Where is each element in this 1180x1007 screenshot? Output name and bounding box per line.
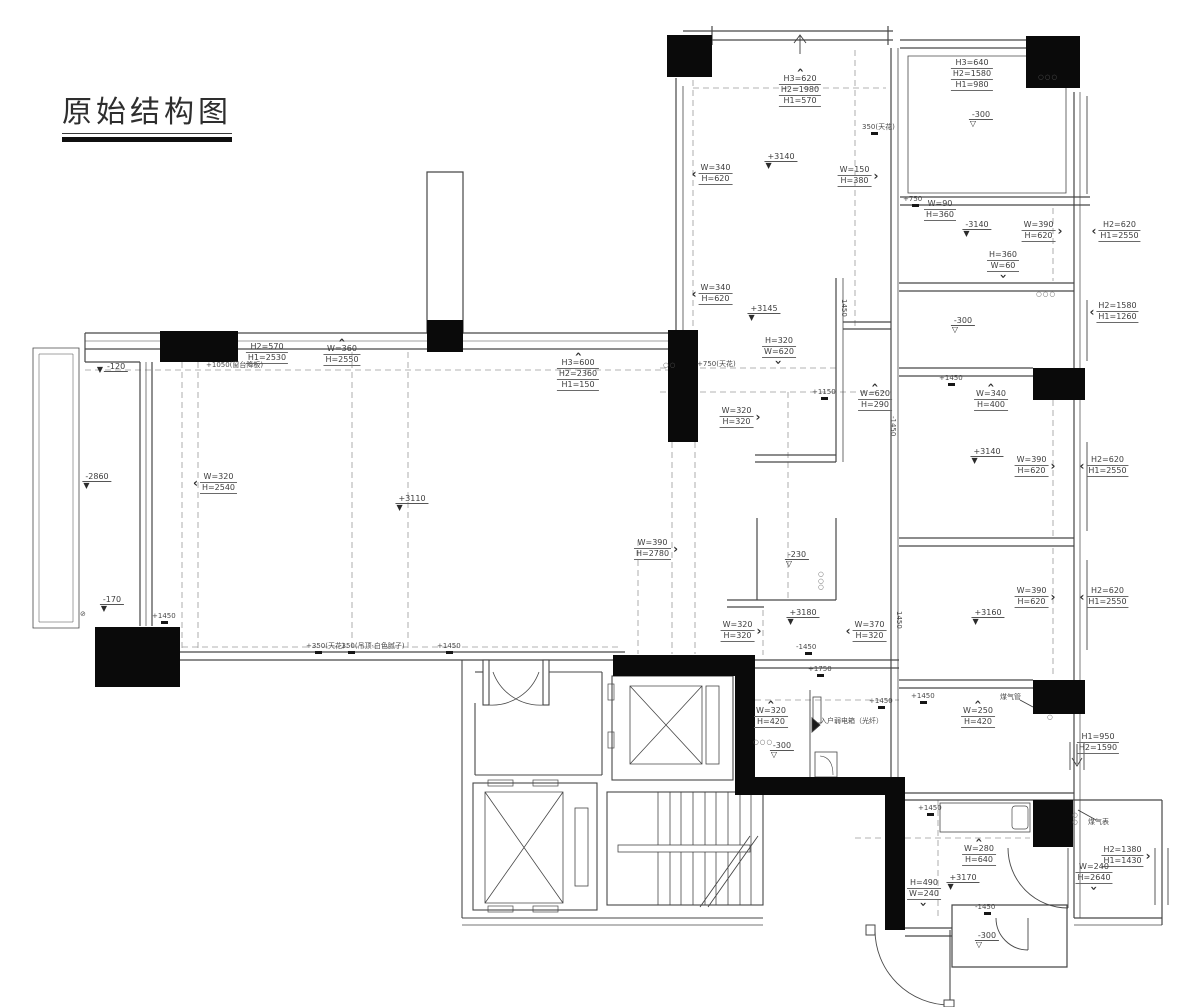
dimension-text: H1=2550 — [1086, 466, 1128, 477]
dimension-text: W=150 — [838, 165, 872, 176]
dimension-text: H1=150 — [557, 380, 599, 391]
note-text: +750 — [903, 195, 922, 207]
dimension-text: H2=1380 — [1101, 845, 1143, 856]
arrow-right-icon: › — [1057, 227, 1062, 235]
dimension-text: H2=620 — [1086, 586, 1128, 597]
dimension-label: W=150H=380› — [838, 165, 879, 187]
dimension-text: W=370 — [853, 620, 887, 631]
arrow-left-icon: ‹ — [692, 170, 697, 178]
dimension-label: W=320H=320› — [721, 620, 762, 642]
dimension-text: H=490 — [907, 878, 941, 889]
dimension-text: W=250 — [961, 706, 995, 717]
level-marker: -170▼ — [100, 595, 124, 612]
dimension-text: H1=980 — [951, 80, 993, 91]
circle-glyph: ○ — [1038, 74, 1044, 81]
dimension-label: W=240H=2640› — [1075, 862, 1112, 892]
level-triangle-filled-icon: ▼ — [83, 482, 89, 489]
level-triangle-filled-icon: ▼ — [972, 618, 978, 625]
dimension-text: H=420 — [754, 717, 788, 728]
vent-circles-icon: ○ — [1047, 714, 1053, 721]
dimension-text: H=2780 — [634, 549, 671, 560]
arrow-up-icon: › — [871, 383, 879, 388]
note-text: +1450 — [869, 697, 893, 709]
tick-mark — [161, 621, 168, 624]
note-text: -1450 — [796, 643, 816, 655]
note-value: -1450 — [889, 416, 897, 436]
dimension-label: ›W=280H=640 — [962, 836, 996, 866]
dimension-label: ›W=320H=420 — [754, 698, 788, 728]
dimension-label: W=390H=2780› — [634, 538, 678, 560]
level-triangle-open-icon: ▽ — [771, 751, 777, 758]
note-value: -1450 — [796, 643, 816, 651]
note-text: +1050(窗台降板) — [206, 361, 263, 369]
arrow-down-icon: › — [999, 274, 1007, 279]
note-text: +1450 — [939, 374, 963, 386]
dimension-label: H=320W=620› — [762, 336, 796, 366]
dimension-label: ‹W=320H=2540 — [193, 472, 237, 494]
dimension-text: H=620 — [699, 294, 733, 305]
tick-mark — [871, 132, 878, 135]
dimension-label: ‹H2=1580H1=1260 — [1089, 301, 1138, 323]
drawing-title-block: 原始结构图 — [62, 96, 232, 142]
dimension-text: H=400 — [974, 400, 1008, 411]
dimension-text: H=360 — [924, 210, 956, 221]
level-marker: +3180▼ — [786, 608, 819, 625]
dimension-text: W=320 — [720, 406, 754, 417]
note-value: 1450 — [895, 611, 903, 629]
arrow-down-icon: › — [1090, 886, 1098, 891]
level-marker: +3145▼ — [747, 304, 780, 321]
note-value: 入户弱电箱（光纤） — [820, 717, 883, 725]
circle-glyph: ○ — [1045, 74, 1051, 81]
level-marker: +3170▼ — [946, 873, 979, 890]
arrow-right-icon: › — [1050, 593, 1055, 601]
level-triangle-filled-icon: ▼ — [97, 366, 103, 373]
note-value: 煤气管 — [1000, 693, 1021, 701]
dimension-text: W=390 — [1015, 586, 1049, 597]
note-text: +1450 — [152, 612, 176, 624]
circle-glyph: ○ — [1047, 714, 1053, 721]
dimension-label: H=490W=240› — [907, 878, 941, 908]
dimension-label: ›W=620H=290 — [858, 381, 892, 411]
level-triangle-open-icon: ▽ — [952, 326, 958, 333]
dimension-text: H=320 — [853, 631, 887, 642]
arrow-up-icon: › — [767, 700, 775, 705]
circle-glyph: ○ — [663, 362, 669, 369]
note-value: +1450 — [911, 692, 935, 700]
floor-plan-canvas: 原始结构图 ›H3=620H2=1980H1=570‹W=340H=620W=1… — [0, 0, 1180, 1007]
dimension-text: W=320 — [754, 706, 788, 717]
dimension-text: H2=1590 — [1077, 743, 1119, 754]
level-triangle-filled-icon: ▼ — [963, 230, 969, 237]
dimension-text: H2=1580 — [951, 69, 993, 80]
dimension-text: W=240 — [907, 889, 941, 900]
vent-circles-icon: ○○ — [663, 362, 675, 369]
note-text: 1450 — [895, 611, 903, 629]
dimension-text: W=90 — [924, 199, 956, 210]
level-marker: -300▽ — [951, 316, 975, 333]
circle-glyph: ○ — [818, 584, 824, 591]
dimension-text: H=320 — [762, 336, 796, 347]
dimension-label: ›W=250H=420 — [961, 698, 995, 728]
vent-circles-icon: ○○○ — [753, 739, 772, 746]
note-text: +1450 — [437, 642, 461, 654]
vent-circles-icon: ○○○ — [1036, 291, 1055, 298]
note-text: +1450 — [918, 804, 942, 816]
note-value: +750(天花) — [697, 360, 736, 368]
dimension-text: H1=570 — [779, 96, 821, 107]
dimension-text: H=320 — [721, 631, 755, 642]
note-value: +1450 — [918, 804, 942, 812]
dimension-label: ‹H2=620H1=2550 — [1079, 455, 1128, 477]
tick-mark — [878, 706, 885, 709]
level-text: -120 — [104, 362, 128, 372]
note-text: ⊘ — [80, 610, 86, 618]
circle-glyph: ○ — [1049, 291, 1055, 298]
dimension-text: H=2550 — [323, 355, 360, 366]
dimension-text: H=620 — [699, 174, 733, 185]
dimension-text: H1=1260 — [1096, 312, 1138, 323]
arrow-left-icon: ‹ — [1079, 593, 1084, 601]
level-triangle-filled-icon: ▼ — [787, 618, 793, 625]
level-marker: +3110▼ — [395, 494, 428, 511]
note-value: +1150 — [812, 388, 836, 396]
dimension-label: ›W=340H=400 — [974, 381, 1008, 411]
title-underline-thick — [62, 137, 232, 142]
dimension-text: H=380 — [838, 176, 872, 187]
dimension-text: W=390 — [634, 538, 671, 549]
note-text: -1450 — [889, 416, 897, 436]
dimension-text: H2=1980 — [779, 85, 821, 96]
tick-mark — [948, 383, 955, 386]
arrow-left-icon: ‹ — [1091, 227, 1096, 235]
dimension-text: W=340 — [699, 283, 733, 294]
circle-glyph: ○ — [1051, 74, 1057, 81]
note-value: +750 — [903, 195, 922, 203]
dimension-text: H1=2550 — [1098, 231, 1140, 242]
dimension-text: H=2540 — [200, 483, 237, 494]
arrow-up-icon: › — [796, 68, 804, 73]
tick-mark — [927, 813, 934, 816]
dimension-text: H2=2360 — [557, 369, 599, 380]
dimension-text: H=640 — [962, 855, 996, 866]
arrow-left-icon: ‹ — [1079, 462, 1084, 470]
level-triangle-filled-icon: ▼ — [748, 314, 754, 321]
circle-glyph: ○ — [1043, 291, 1049, 298]
dimension-label: W=320H=320› — [720, 406, 761, 428]
circle-glyph: ○ — [760, 739, 766, 746]
dimension-text: H2=1580 — [1096, 301, 1138, 312]
level-triangle-open-icon: ▽ — [786, 560, 792, 567]
dimension-label: W=390H=620› — [1015, 586, 1056, 608]
note-value: +1450 — [939, 374, 963, 382]
dimension-text: W=620 — [762, 347, 796, 358]
level-marker: -230▽ — [785, 550, 809, 567]
tick-mark — [920, 701, 927, 704]
dimension-label: W=90H=360 — [924, 199, 956, 221]
arrow-left-icon: ‹ — [846, 627, 851, 635]
dimension-text: H=2640 — [1075, 873, 1112, 884]
dimension-text: H1=950 — [1077, 732, 1119, 743]
dimension-text: H3=600 — [557, 358, 599, 369]
dimension-text: W=360 — [323, 344, 360, 355]
tick-mark — [805, 652, 812, 655]
dimension-text: W=390 — [1015, 455, 1049, 466]
level-triangle-open-icon: ▽ — [976, 941, 982, 948]
level-triangle-filled-icon: ▼ — [971, 457, 977, 464]
level-triangle-filled-icon: ▼ — [396, 504, 402, 511]
level-marker: -300▽ — [969, 110, 993, 127]
arrow-up-icon: › — [987, 383, 995, 388]
note-text: +750(天花) — [697, 360, 736, 368]
arrow-left-icon: ‹ — [1089, 308, 1094, 316]
circle-glyph: ○ — [1072, 819, 1078, 826]
tick-mark — [817, 674, 824, 677]
level-marker: +3160▼ — [971, 608, 1004, 625]
dimension-label: ›H3=620H2=1980H1=570 — [779, 66, 821, 107]
dimension-text: H3=640 — [951, 58, 993, 69]
dimension-label: ‹W=340H=620 — [692, 283, 733, 305]
level-triangle-filled-icon: ▼ — [947, 883, 953, 890]
dimension-label: W=390H=620› — [1022, 220, 1063, 242]
level-triangle-open-icon: ▽ — [970, 120, 976, 127]
note-value: 煤气表 — [1088, 818, 1109, 826]
circle-glyph: ○ — [766, 739, 772, 746]
dimension-text: H=320 — [720, 417, 754, 428]
dimension-text: H=420 — [961, 717, 995, 728]
level-marker: +3140▼ — [970, 447, 1003, 464]
dimension-label: ‹W=340H=620 — [692, 163, 733, 185]
tick-mark — [315, 651, 322, 654]
level-triangle-filled-icon: ▼ — [101, 605, 107, 612]
note-value: +1050(窗台降板) — [206, 361, 263, 369]
dimension-label: W=390H=620› — [1015, 455, 1056, 477]
arrow-left-icon: ‹ — [193, 479, 198, 487]
note-value: ⊘ — [80, 610, 86, 618]
dimension-text: H2=570 — [246, 342, 288, 353]
dimension-text: H=620 — [1015, 466, 1049, 477]
level-marker: -3140▼ — [962, 220, 991, 237]
dimension-label: H1=950H2=1590 — [1077, 732, 1119, 754]
dimension-text: W=60 — [987, 261, 1019, 272]
note-value: 350(天花) — [862, 123, 895, 131]
dimension-text: W=340 — [974, 389, 1008, 400]
note-text: 1450 — [840, 299, 848, 317]
dimension-text: W=320 — [721, 620, 755, 631]
dimension-text: H2=620 — [1098, 220, 1140, 231]
drawing-title: 原始结构图 — [62, 96, 232, 129]
dimension-text: H1=2550 — [1086, 597, 1128, 608]
note-text: +1150 — [812, 388, 836, 400]
dimension-text: W=280 — [962, 844, 996, 855]
note-text: 350(天花) — [862, 123, 895, 135]
dimension-label: ›H3=600H2=2360H1=150 — [557, 350, 599, 391]
level-marker: -300▽ — [770, 741, 794, 758]
circle-glyph: ○ — [1036, 291, 1042, 298]
note-text: 煤气表 — [1088, 818, 1109, 826]
title-underline-thin — [62, 133, 232, 134]
dimension-label: H3=640H2=1580H1=980 — [951, 58, 993, 91]
note-text: 煤气管 — [1000, 693, 1021, 701]
note-value: +1450 — [869, 697, 893, 705]
dimension-text: W=320 — [200, 472, 237, 483]
level-marker: ▼-120 — [96, 362, 128, 372]
level-marker: -300▽ — [975, 931, 999, 948]
dimension-label: ‹H2=620H1=2550 — [1091, 220, 1140, 242]
dimension-text: H=360 — [987, 250, 1019, 261]
arrow-up-icon: › — [975, 838, 983, 843]
dimension-text: H2=620 — [1086, 455, 1128, 466]
arrow-right-icon: › — [673, 545, 678, 553]
note-value: +1450 — [152, 612, 176, 620]
dimension-text: H=620 — [1015, 597, 1049, 608]
vent-circles-icon: ○○ — [1072, 812, 1078, 825]
arrow-right-icon: › — [1146, 852, 1151, 860]
arrow-up-icon: › — [974, 700, 982, 705]
arrow-left-icon: ‹ — [692, 290, 697, 298]
note-value: +1450 — [437, 642, 461, 650]
note-value: -350(吊顶·白色腻子) — [339, 642, 405, 650]
note-value: -1450 — [975, 903, 995, 911]
arrow-up-icon: › — [338, 338, 346, 343]
arrow-right-icon: › — [1050, 462, 1055, 470]
dimension-text: H=620 — [1022, 231, 1056, 242]
level-triangle-filled-icon: ▼ — [765, 162, 771, 169]
note-text: 入户弱电箱（光纤） — [820, 717, 883, 725]
vent-circles-icon: ○○○ — [1038, 74, 1057, 81]
note-text: -350(吊顶·白色腻子) — [339, 642, 405, 654]
note-value: 1450 — [840, 299, 848, 317]
arrow-right-icon: › — [756, 627, 761, 635]
dimension-label: ›W=360H=2550 — [323, 336, 360, 366]
dimension-text: W=340 — [699, 163, 733, 174]
level-marker: -2860▼ — [82, 472, 111, 489]
circle-glyph: ○ — [753, 739, 759, 746]
annotation-layer: ›H3=620H2=1980H1=570‹W=340H=620W=150H=38… — [0, 0, 1180, 1007]
tick-mark — [912, 204, 919, 207]
dimension-label: ‹H2=620H1=2550 — [1079, 586, 1128, 608]
dimension-text: H3=620 — [779, 74, 821, 85]
tick-mark — [984, 912, 991, 915]
note-text: +1450 — [911, 692, 935, 704]
note-text: -1450 — [975, 903, 995, 915]
tick-mark — [821, 397, 828, 400]
arrow-right-icon: › — [873, 172, 878, 180]
dimension-text: H=290 — [858, 400, 892, 411]
note-text: +1750 — [808, 665, 832, 677]
circle-glyph: ○ — [670, 362, 676, 369]
arrow-right-icon: › — [755, 413, 760, 421]
arrow-up-icon: › — [574, 352, 582, 357]
tick-mark — [348, 651, 355, 654]
dimension-label: H=360W=60› — [987, 250, 1019, 280]
tick-mark — [446, 651, 453, 654]
arrow-down-icon: › — [775, 360, 783, 365]
arrow-down-icon: › — [920, 902, 928, 907]
dimension-text: W=390 — [1022, 220, 1056, 231]
vent-circles-icon: ○○○ — [818, 571, 824, 591]
dimension-text: W=240 — [1075, 862, 1112, 873]
dimension-text: W=620 — [858, 389, 892, 400]
level-marker: +3140▼ — [764, 152, 797, 169]
dimension-label: ‹W=370H=320 — [846, 620, 887, 642]
note-value: +1750 — [808, 665, 832, 673]
